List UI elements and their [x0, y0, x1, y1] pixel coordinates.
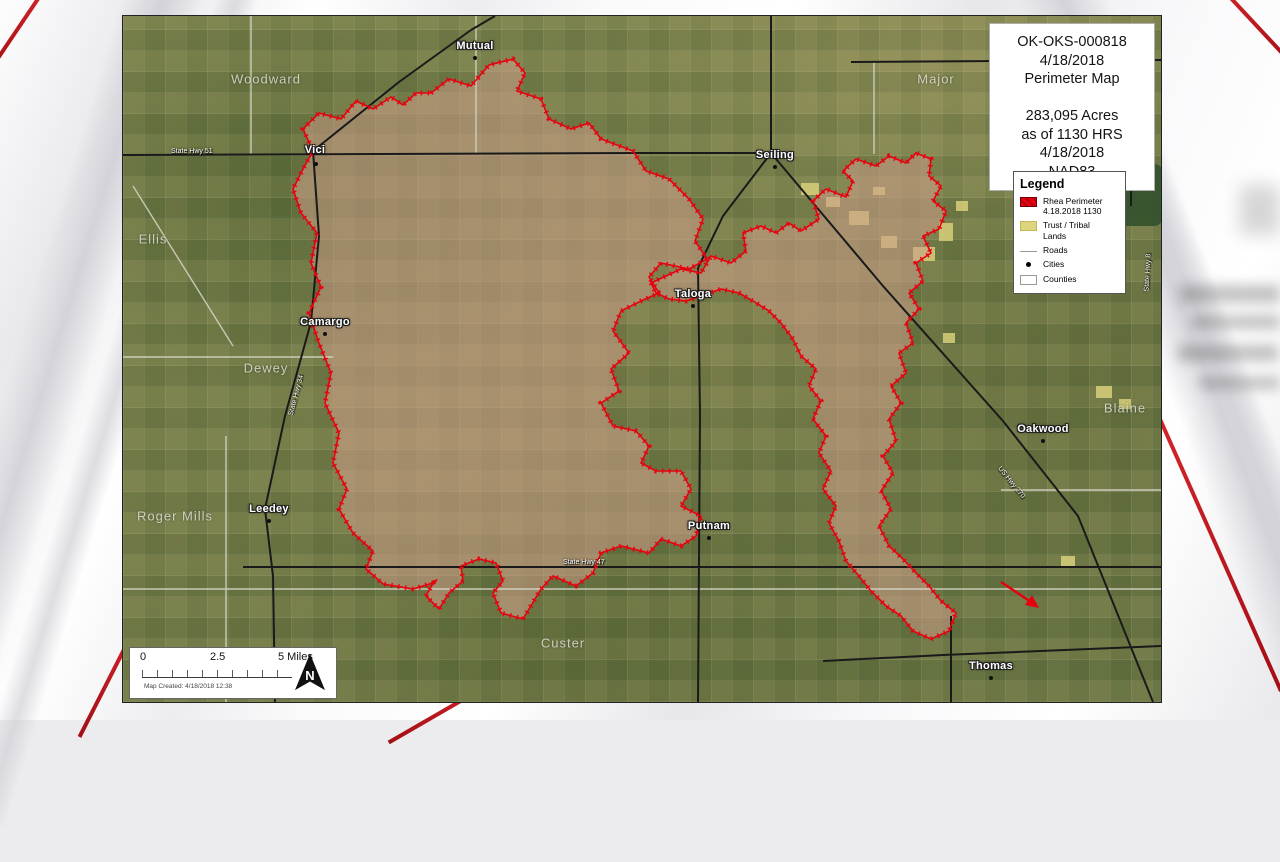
- city-label-thomas: Thomas: [969, 660, 1013, 672]
- city-dot-oakwood: [1041, 439, 1045, 443]
- city-label-mutual: Mutual: [456, 40, 493, 52]
- legend-item-roads: Roads: [1020, 245, 1119, 255]
- legend-label-line: Roads: [1043, 245, 1068, 255]
- city-dot-camargo: [323, 332, 327, 336]
- perimeter-map: Mutual Vici Seiling Taloga Camargo Leede…: [122, 15, 1162, 703]
- city-dot-vici: [314, 162, 318, 166]
- county-label-dewey: Dewey: [244, 361, 289, 376]
- county-label-ellis: Ellis: [139, 232, 168, 247]
- legend-title: Legend: [1020, 177, 1119, 191]
- county-label-blaine: Blaine: [1104, 401, 1146, 416]
- legend-label-line: Rhea Perimeter: [1043, 196, 1103, 206]
- blurred-backdrop-text: [1178, 345, 1278, 361]
- road-label-hwy51: State Hwy 51: [171, 148, 213, 155]
- blurred-backdrop-shape: [1240, 185, 1280, 235]
- legend-label-line: 4.18.2018 1130: [1043, 206, 1103, 216]
- legend-item-perimeter: Rhea Perimeter 4.18.2018 1130: [1020, 196, 1119, 216]
- city-dot-mutual: [473, 56, 477, 60]
- north-arrow-icon: N: [290, 653, 330, 693]
- blurred-backdrop-text: [1200, 377, 1280, 389]
- city-label-putnam: Putnam: [688, 520, 730, 532]
- county-label-woodward: Woodward: [231, 72, 301, 87]
- legend-item-tribal: Trust / Tribal Lands: [1020, 220, 1119, 240]
- scale-ruler: [142, 670, 292, 678]
- city-label-vici: Vici: [305, 144, 326, 156]
- city-dot-icon: [1026, 262, 1031, 267]
- county-label-roger-mills: Roger Mills: [137, 509, 213, 524]
- city-label-leedey: Leedey: [249, 503, 289, 515]
- city-dot-leedey: [267, 519, 271, 523]
- city-dot-putnam: [707, 536, 711, 540]
- city-dot-thomas: [989, 676, 993, 680]
- legend: Legend Rhea Perimeter 4.18.2018 1130 Tru…: [1013, 171, 1126, 294]
- scale-bar: 0 2.5 5 Miles Map Created: 4/18/2018 12:…: [129, 647, 337, 699]
- legend-label-line: Counties: [1043, 274, 1077, 284]
- acreage: 283,095 Acres: [993, 107, 1151, 126]
- city-label-camargo: Camargo: [300, 316, 350, 328]
- scale-mid: 2.5: [210, 651, 225, 663]
- county-label-major: Major: [917, 72, 955, 87]
- as-of-date: 4/18/2018: [993, 144, 1151, 163]
- city-label-oakwood: Oakwood: [1017, 423, 1069, 435]
- city-dot-taloga: [691, 304, 695, 308]
- city-label-seiling: Seiling: [756, 149, 794, 161]
- tribal-swatch: [1020, 221, 1037, 231]
- legend-label-line: Cities: [1043, 259, 1064, 269]
- map-created-note: Map Created: 4/18/2018 12:38: [144, 683, 232, 690]
- map-type: Perimeter Map: [993, 70, 1151, 89]
- legend-label-line: Trust / Tribal: [1043, 220, 1090, 230]
- scale-zero: 0: [140, 651, 146, 663]
- red-arrow-annotation: [1001, 582, 1039, 608]
- burn-area-fill: [293, 59, 956, 639]
- road-swatch: [1020, 246, 1037, 252]
- north-letter: N: [305, 668, 314, 683]
- incident-id: OK-OKS-000818: [993, 33, 1151, 52]
- blurred-backdrop-text: [1192, 315, 1280, 329]
- city-label-taloga: Taloga: [675, 288, 711, 300]
- map-info-box: OK-OKS-000818 4/18/2018 Perimeter Map 28…: [989, 23, 1155, 191]
- road-label-hwy47: State Hwy 47: [563, 559, 605, 566]
- legend-item-counties: Counties: [1020, 274, 1119, 285]
- legend-label-line: Lands: [1043, 231, 1090, 241]
- city-dot-seiling: [773, 165, 777, 169]
- spacer: [993, 89, 1151, 108]
- legend-item-cities: Cities: [1020, 259, 1119, 270]
- city-swatch: [1020, 260, 1037, 270]
- blurred-backdrop-text: [1180, 285, 1280, 303]
- broadcast-frame: Mutual Vici Seiling Taloga Camargo Leede…: [0, 0, 1280, 720]
- as-of-time: as of 1130 HRS: [993, 126, 1151, 145]
- county-swatch: [1020, 275, 1037, 285]
- perimeter-swatch: [1020, 197, 1037, 207]
- county-label-custer: Custer: [541, 636, 585, 651]
- incident-date: 4/18/2018: [993, 52, 1151, 71]
